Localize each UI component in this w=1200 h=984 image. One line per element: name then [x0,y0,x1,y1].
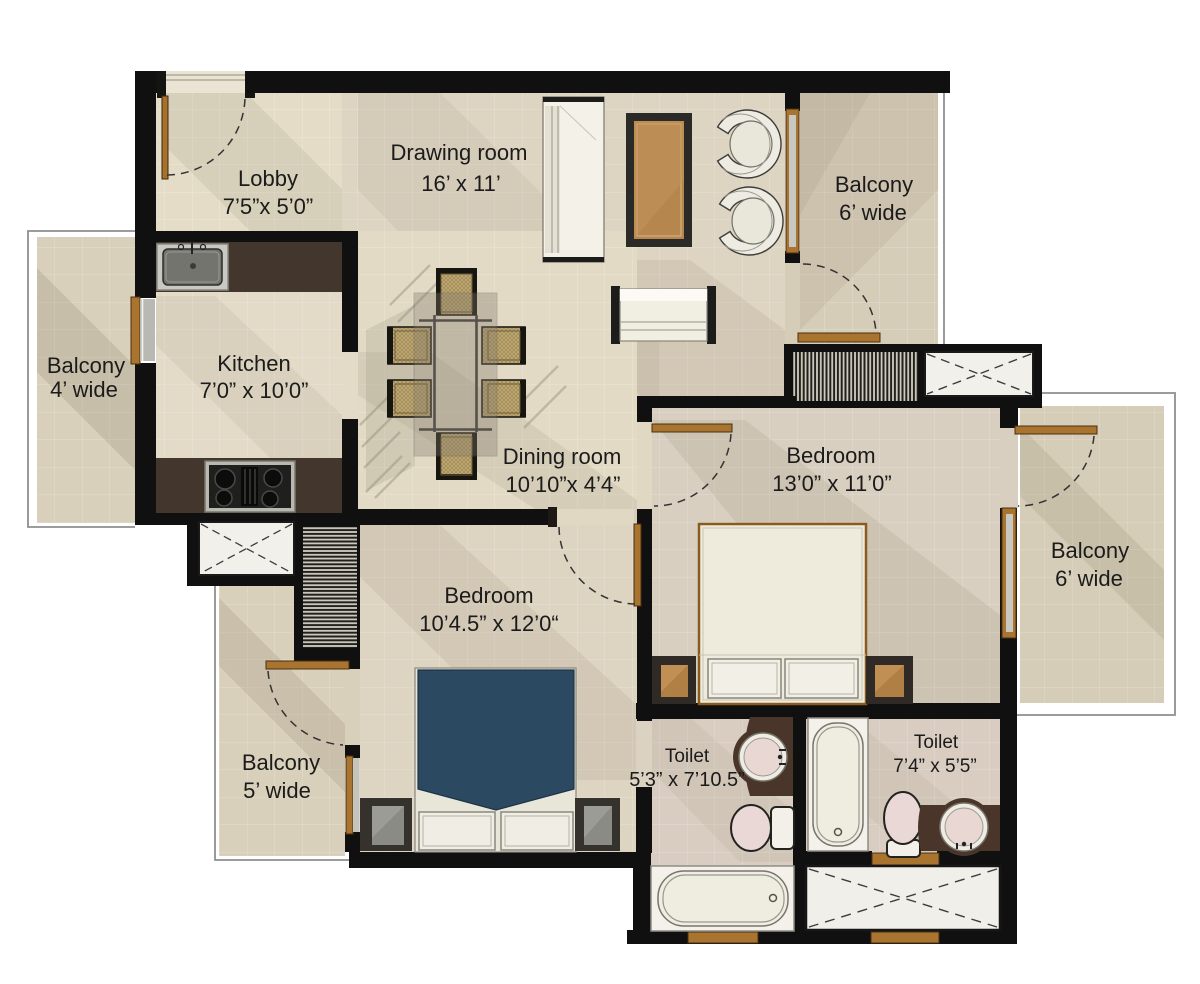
svg-text:Balcony: Balcony [1051,538,1129,563]
svg-text:Balcony: Balcony [835,172,913,197]
svg-text:5’ wide: 5’ wide [243,778,311,803]
svg-text:Toilet: Toilet [665,746,710,767]
svg-text:10’10”x 4’4”: 10’10”x 4’4” [506,472,621,497]
svg-text:7’4” x 5’5”: 7’4” x 5’5” [893,756,976,777]
svg-text:6’ wide: 6’ wide [839,200,907,225]
svg-text:Balcony: Balcony [47,353,125,378]
svg-text:7’0” x 10’0”: 7’0” x 10’0” [200,378,309,403]
svg-text:Toilet: Toilet [914,732,959,753]
svg-text:Bedroom: Bedroom [444,583,533,608]
svg-text:4’ wide: 4’ wide [50,377,118,402]
svg-text:Kitchen: Kitchen [217,351,290,376]
svg-text:Lobby: Lobby [238,166,298,191]
svg-text:6’ wide: 6’ wide [1055,566,1123,591]
svg-text:Bedroom: Bedroom [786,443,875,468]
svg-text:16’ x 11’: 16’ x 11’ [421,171,501,196]
svg-text:5’3” x 7’10.5”: 5’3” x 7’10.5” [629,769,745,791]
svg-text:Drawing room: Drawing room [391,140,528,165]
svg-text:10’4.5” x 12’0“: 10’4.5” x 12’0“ [419,611,558,636]
svg-text:Dining room: Dining room [503,444,622,469]
svg-text:Balcony: Balcony [242,750,320,775]
svg-text:13’0” x 11’0”: 13’0” x 11’0” [772,471,891,496]
svg-text:7’5”x 5’0”: 7’5”x 5’0” [223,194,313,219]
